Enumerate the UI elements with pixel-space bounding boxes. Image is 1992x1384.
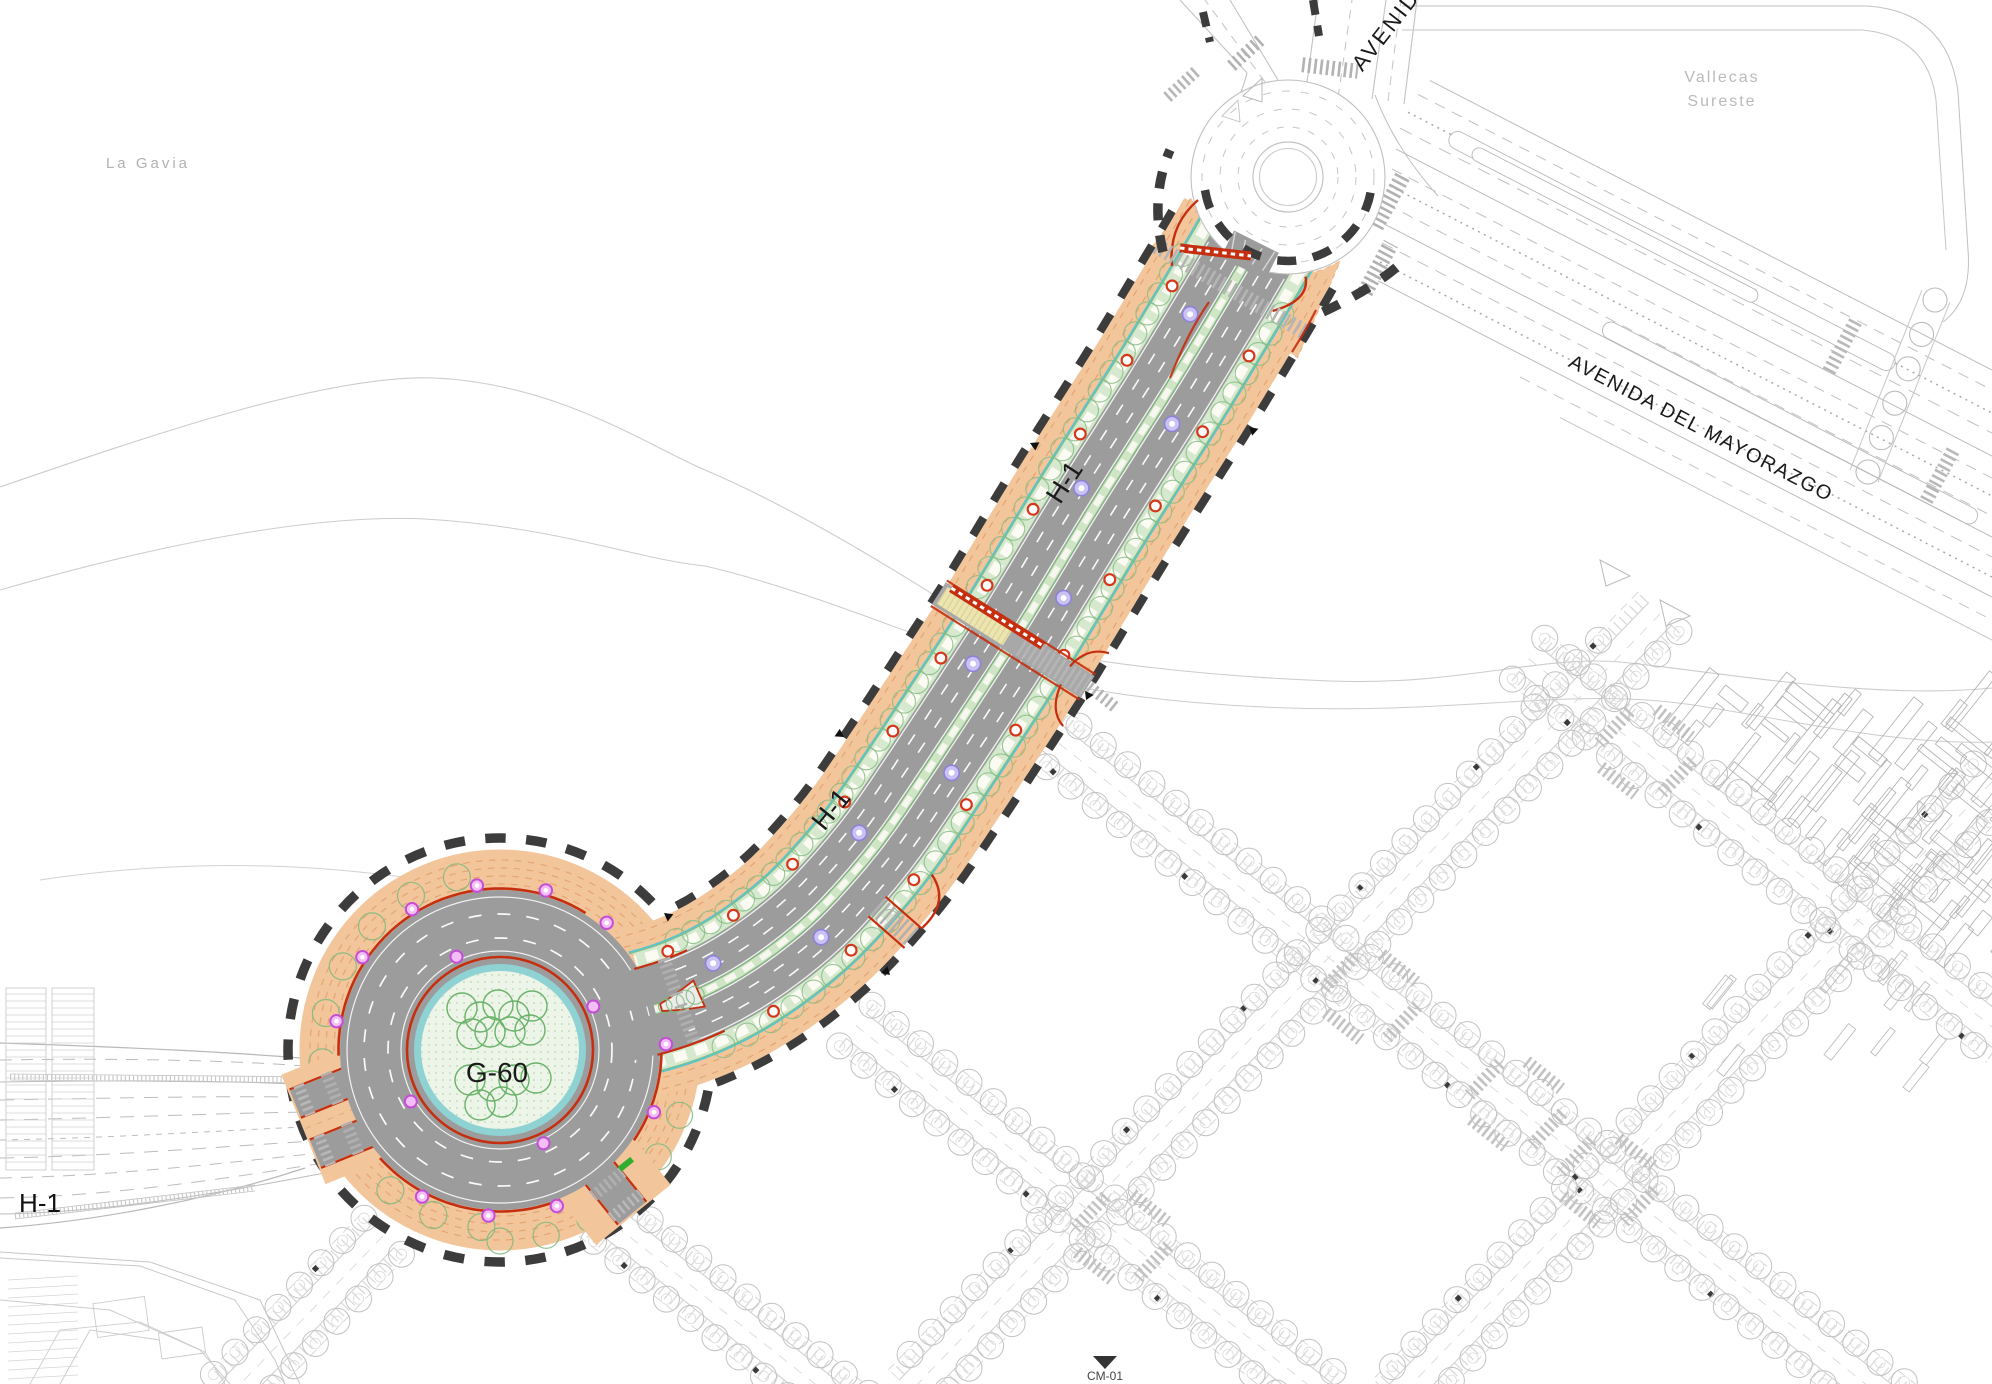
svg-text:Vallecas: Vallecas: [1684, 69, 1759, 86]
svg-text:La Gavia: La Gavia: [106, 155, 190, 172]
svg-text:Sureste: Sureste: [1687, 93, 1756, 110]
svg-text:CM-01: CM-01: [1087, 1369, 1123, 1383]
svg-text:G-60: G-60: [466, 1057, 528, 1088]
svg-text:H-1: H-1: [19, 1188, 61, 1218]
